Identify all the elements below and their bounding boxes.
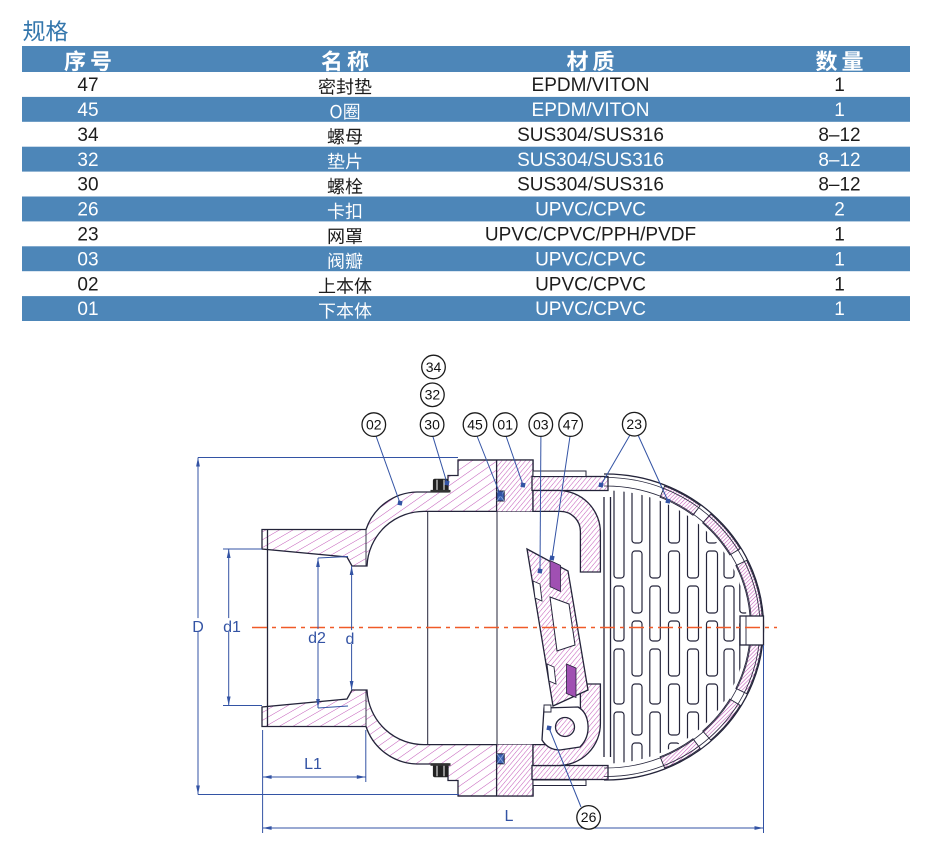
svg-text:03: 03 [533,416,549,432]
svg-text:d: d [346,631,355,648]
svg-text:45: 45 [77,100,98,121]
svg-text:1: 1 [834,225,845,246]
svg-text:32: 32 [77,150,98,171]
svg-text:SUS304/SUS316: SUS304/SUS316 [517,150,664,171]
svg-text:8–12: 8–12 [818,150,860,171]
svg-text:1: 1 [834,299,845,320]
svg-text:26: 26 [77,200,98,221]
svg-text:L: L [505,808,514,825]
svg-text:01: 01 [497,416,513,432]
svg-text:34: 34 [426,359,442,375]
svg-text:32: 32 [425,387,441,403]
svg-text:03: 03 [77,249,98,270]
svg-text:34: 34 [77,125,99,146]
svg-text:1: 1 [834,75,845,96]
svg-text:8–12: 8–12 [818,175,860,196]
svg-text:23: 23 [626,416,642,432]
svg-text:23: 23 [77,225,98,246]
svg-text:47: 47 [563,416,579,432]
svg-text:01: 01 [77,299,98,320]
svg-text:UPVC/CPVC: UPVC/CPVC [535,249,646,270]
svg-text:EPDM/VITON: EPDM/VITON [532,100,650,121]
svg-text:2: 2 [834,200,845,221]
svg-text:8–12: 8–12 [818,125,860,146]
svg-text:EPDM/VITON: EPDM/VITON [532,75,650,96]
svg-text:d1: d1 [223,619,241,636]
svg-text:45: 45 [467,416,483,432]
svg-text:L1: L1 [304,756,322,773]
svg-text:26: 26 [581,809,597,825]
svg-text:30: 30 [77,175,98,196]
svg-text:UPVC/CPVC: UPVC/CPVC [535,299,646,320]
svg-text:D: D [192,619,204,636]
svg-text:UPVC/CPVC: UPVC/CPVC [535,274,646,295]
svg-text:1: 1 [834,249,845,270]
svg-text:UPVC/CPVC/PPH/PVDF: UPVC/CPVC/PPH/PVDF [485,225,696,246]
svg-text:1: 1 [834,274,845,295]
svg-text:SUS304/SUS316: SUS304/SUS316 [517,125,664,146]
svg-text:UPVC/CPVC: UPVC/CPVC [535,200,646,221]
svg-text:02: 02 [366,416,382,432]
svg-text:47: 47 [77,75,98,96]
svg-text:30: 30 [424,416,440,432]
svg-text:02: 02 [77,274,98,295]
svg-text:d2: d2 [308,630,326,647]
svg-text:1: 1 [834,100,845,121]
svg-text:SUS304/SUS316: SUS304/SUS316 [517,175,664,196]
